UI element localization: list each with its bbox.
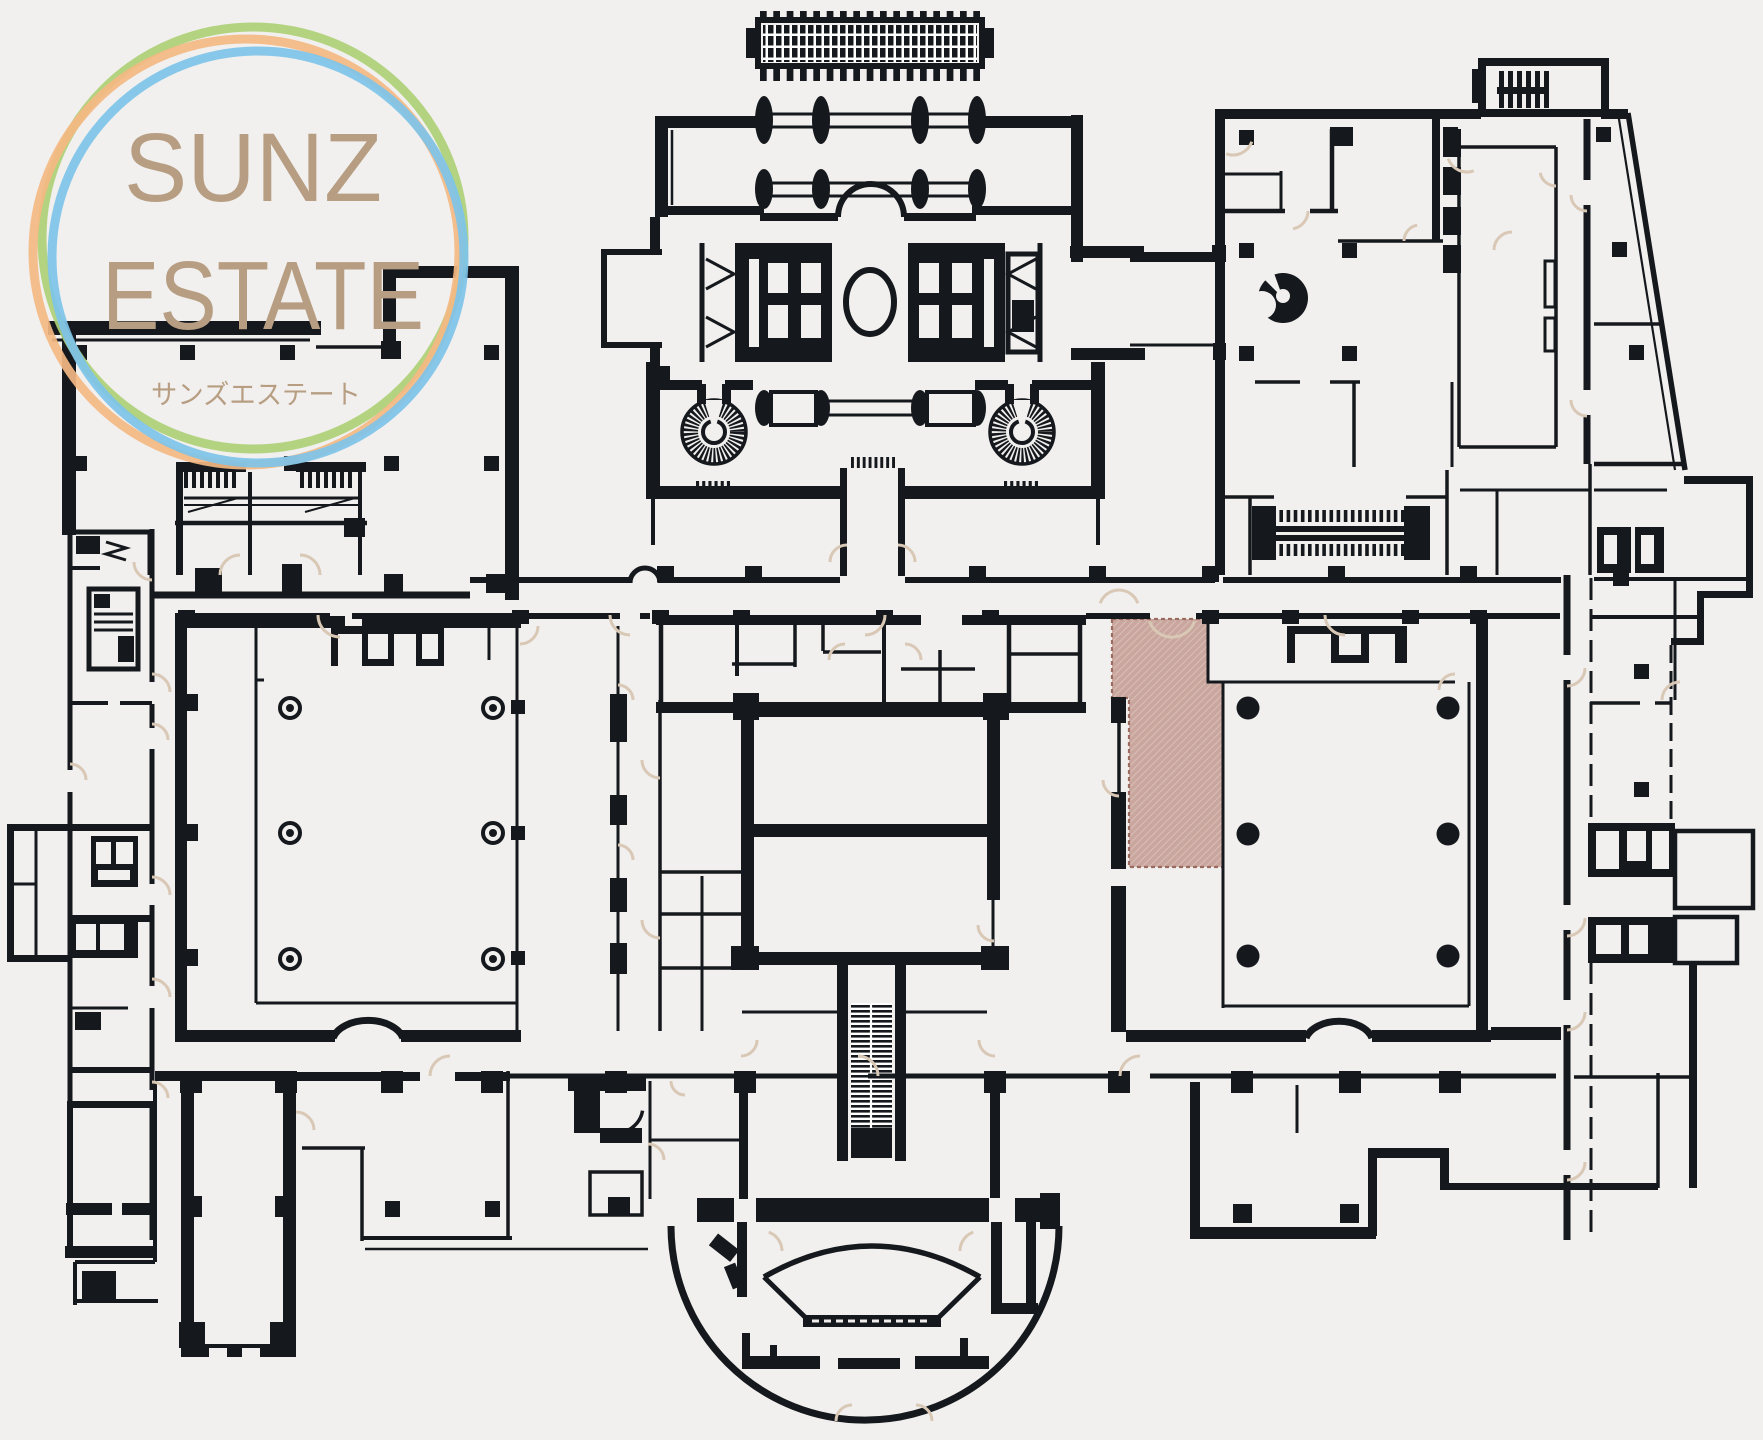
svg-text:ESTATE: ESTATE <box>102 241 424 350</box>
svg-text:サンズエステート: サンズエステート <box>151 380 361 410</box>
svg-text:SUNZ: SUNZ <box>124 113 382 222</box>
